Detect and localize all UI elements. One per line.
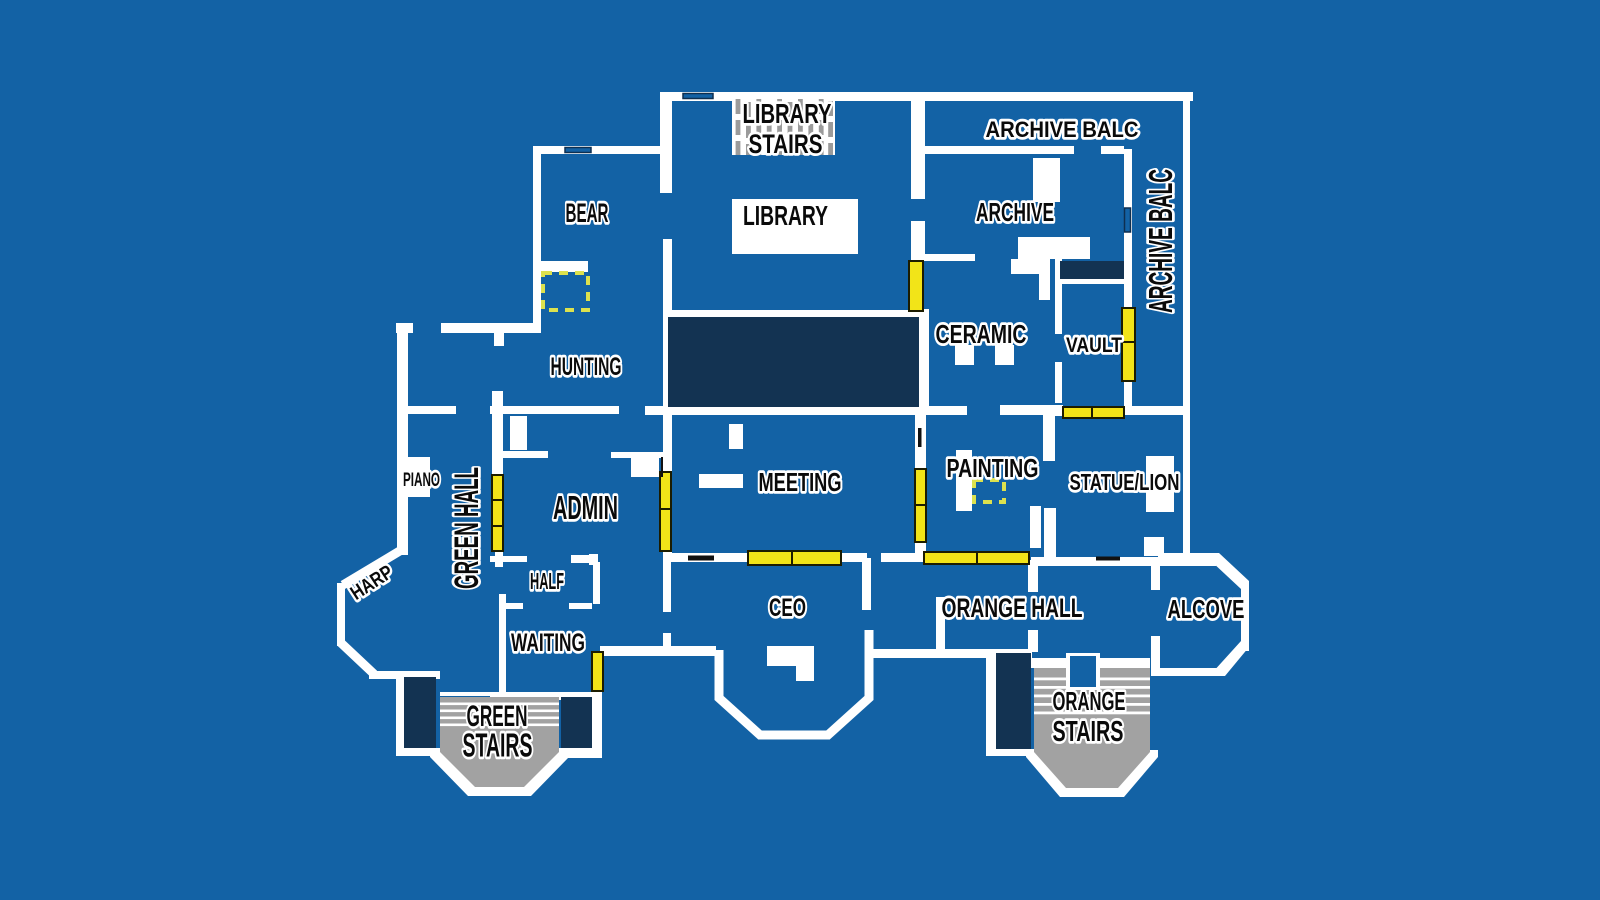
svg-text:ARCHIVE: ARCHIVE [976, 197, 1054, 227]
svg-text:ORANGE HALL: ORANGE HALL [942, 593, 1083, 623]
svg-text:MEETING: MEETING [759, 467, 842, 497]
svg-text:CERAMIC: CERAMIC [936, 319, 1027, 349]
svg-text:HUNTING: HUNTING [551, 353, 622, 381]
svg-text:VAULT: VAULT [1066, 334, 1122, 357]
svg-text:STAIRS: STAIRS [463, 727, 533, 764]
svg-text:STAIRS: STAIRS [749, 129, 823, 159]
svg-text:ADMIN: ADMIN [553, 489, 618, 526]
svg-text:HALF: HALF [530, 568, 564, 594]
svg-text:LIBRARY: LIBRARY [743, 200, 828, 231]
svg-text:ORANGE: ORANGE [1053, 686, 1126, 716]
svg-text:PIANO: PIANO [403, 470, 440, 491]
svg-text:CEO: CEO [769, 594, 806, 622]
svg-text:WAITING: WAITING [511, 629, 585, 657]
svg-text:PAINTING: PAINTING [947, 453, 1039, 483]
svg-text:GREEN HALL: GREEN HALL [448, 467, 486, 589]
svg-text:BEAR: BEAR [566, 198, 609, 228]
svg-text:ARCHIVE BALC: ARCHIVE BALC [986, 117, 1139, 142]
svg-text:ARCHIVE BALC: ARCHIVE BALC [1142, 169, 1179, 313]
svg-text:STATUE/LION: STATUE/LION [1070, 469, 1180, 495]
svg-text:STAIRS: STAIRS [1053, 716, 1124, 748]
svg-text:ALCOVE: ALCOVE [1168, 594, 1245, 624]
svg-text:LIBRARY: LIBRARY [743, 98, 832, 129]
